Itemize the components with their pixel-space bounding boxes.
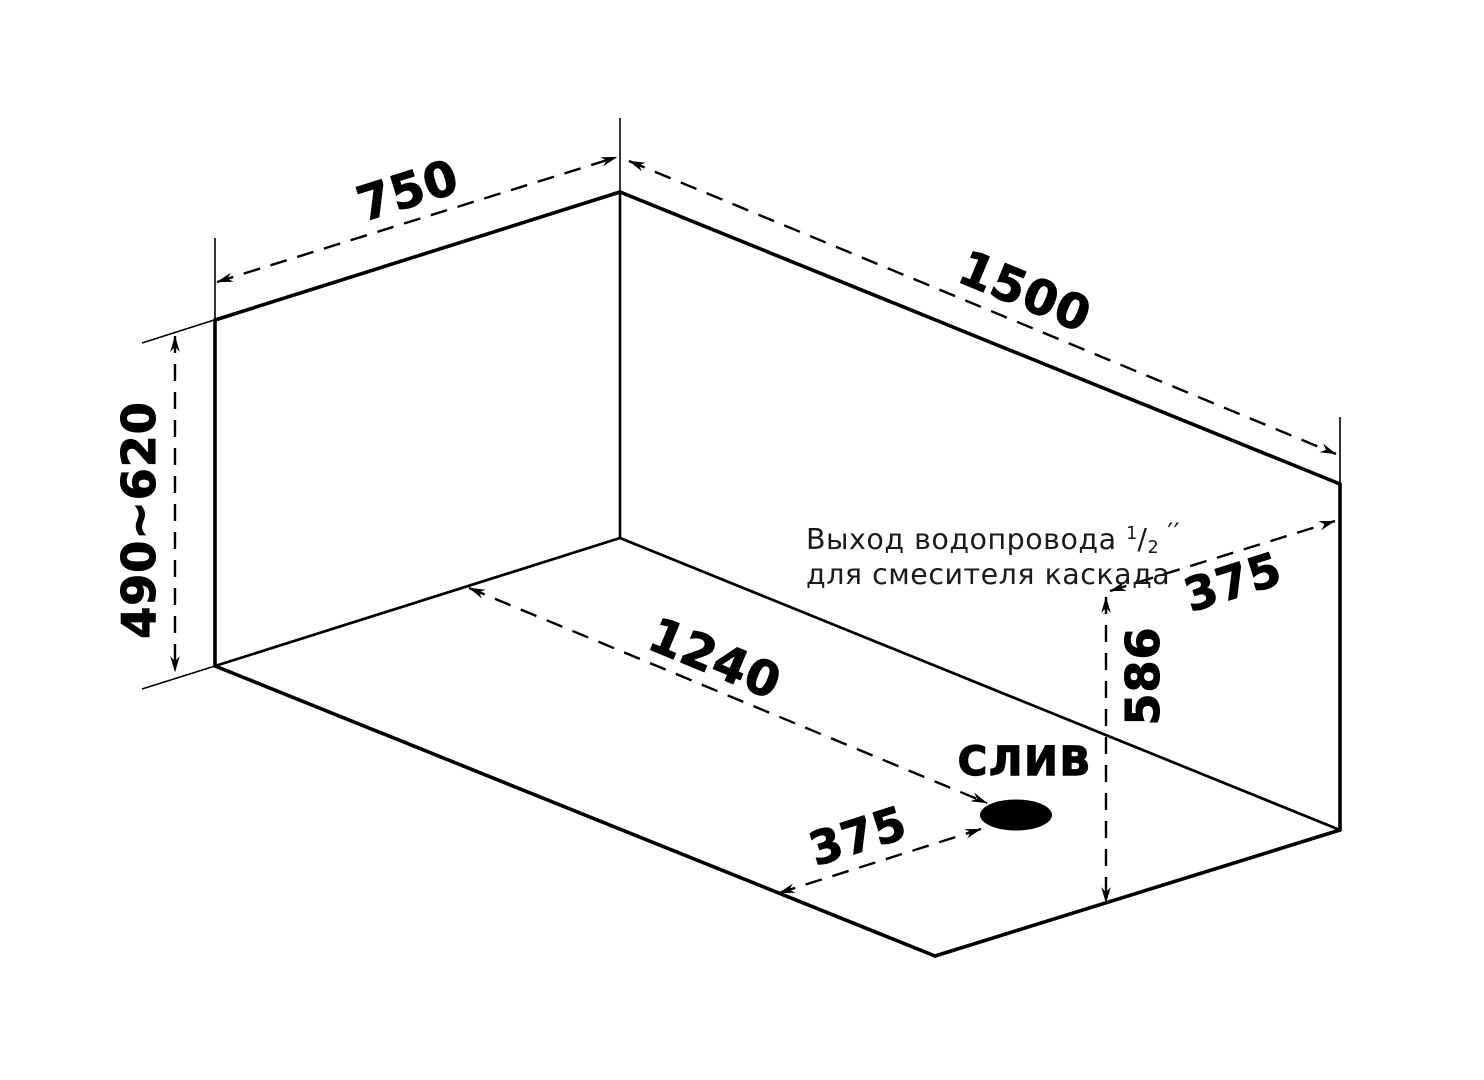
dim-label-height-range: 490~620	[116, 401, 162, 639]
note-fraction-numerator: 1	[1126, 524, 1137, 544]
drain-label: СЛИВ	[958, 742, 1093, 782]
note-line-1: Выход водопровода 1/2 ′′	[806, 519, 1180, 559]
extension-lines	[142, 118, 1340, 689]
drain-ellipse	[980, 800, 1052, 831]
note-fraction-slash: /	[1137, 523, 1147, 556]
dim-label-side-height: 586	[1120, 626, 1166, 725]
diagram-canvas: 750 1500 490~620 1240 375 586 375 СЛИВ В…	[0, 0, 1484, 1080]
note-fraction-denominator: 2	[1147, 538, 1158, 558]
note-inch-marks: ′′	[1159, 518, 1180, 549]
dim-line-top-length-1500	[629, 161, 1336, 454]
diagram-svg	[0, 0, 1484, 1080]
edge-bottom-back-left	[215, 538, 620, 666]
note-line1-prefix: Выход водопровода	[806, 523, 1126, 556]
dim-line-bottom-length-1240	[469, 588, 987, 803]
ext-line-left-corner-top	[142, 314, 233, 343]
edge-bottom-front-left	[215, 666, 935, 956]
edge-bottom-front-right	[935, 830, 1340, 956]
note-text: Выход водопровода 1/2 ′′ для смесителя к…	[806, 519, 1180, 590]
note-line-2: для смесителя каскада	[806, 559, 1180, 590]
edge-rim-back-right	[620, 192, 1340, 484]
